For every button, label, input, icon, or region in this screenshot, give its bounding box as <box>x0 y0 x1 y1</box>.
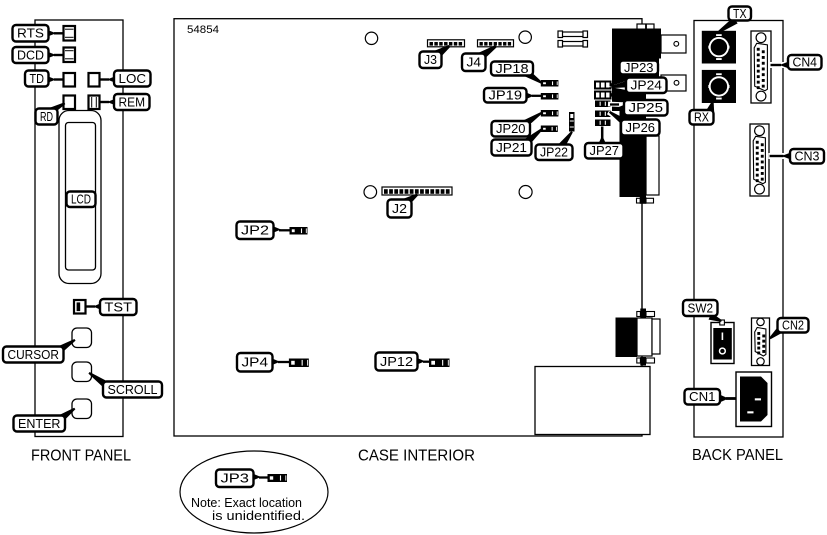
svg-text:SW2: SW2 <box>688 301 714 315</box>
svg-text:JP2: JP2 <box>241 224 269 238</box>
svg-text:DCD: DCD <box>17 48 44 62</box>
svg-text:REM: REM <box>119 95 146 109</box>
svg-text:FRONT PANEL: FRONT PANEL <box>31 448 131 465</box>
svg-text:JP19: JP19 <box>489 89 523 103</box>
svg-text:CN3: CN3 <box>795 150 820 164</box>
svg-text:J3: J3 <box>424 53 437 67</box>
svg-text:CASE INTERIOR: CASE INTERIOR <box>358 448 475 465</box>
svg-text:JP25: JP25 <box>629 101 664 115</box>
svg-text:TD: TD <box>30 72 45 86</box>
svg-text:JP22: JP22 <box>540 146 568 160</box>
svg-text:SCROLL: SCROLL <box>108 383 158 397</box>
svg-text:LCD: LCD <box>71 193 91 207</box>
svg-text:CURSOR: CURSOR <box>8 348 60 362</box>
svg-text:is unidentified.: is unidentified. <box>212 508 305 523</box>
svg-text:RX: RX <box>694 111 710 125</box>
svg-text:JP26: JP26 <box>626 121 656 135</box>
svg-text:ENTER: ENTER <box>18 417 61 431</box>
svg-text:CN4: CN4 <box>793 56 818 70</box>
svg-text:RTS: RTS <box>17 27 44 41</box>
svg-text:JP20: JP20 <box>496 122 526 136</box>
svg-text:JP21: JP21 <box>496 141 527 155</box>
svg-text:TST: TST <box>105 300 133 314</box>
svg-text:CN2: CN2 <box>782 319 804 333</box>
svg-text:JP27: JP27 <box>590 144 620 158</box>
svg-text:J2: J2 <box>392 202 407 216</box>
svg-text:JP24: JP24 <box>631 79 663 93</box>
svg-text:JP23: JP23 <box>624 61 654 75</box>
svg-text:JP18: JP18 <box>496 62 529 76</box>
svg-text:RD: RD <box>40 110 53 124</box>
svg-text:JP4: JP4 <box>242 356 269 370</box>
svg-text:TX: TX <box>733 7 747 21</box>
svg-text:54854: 54854 <box>187 24 219 36</box>
svg-text:LOC: LOC <box>119 72 147 86</box>
svg-text:JP12: JP12 <box>380 355 413 369</box>
svg-text:CN1: CN1 <box>689 390 716 404</box>
svg-text:BACK PANEL: BACK PANEL <box>692 447 783 464</box>
svg-text:J4: J4 <box>467 56 482 70</box>
svg-text:JP3: JP3 <box>221 472 250 486</box>
